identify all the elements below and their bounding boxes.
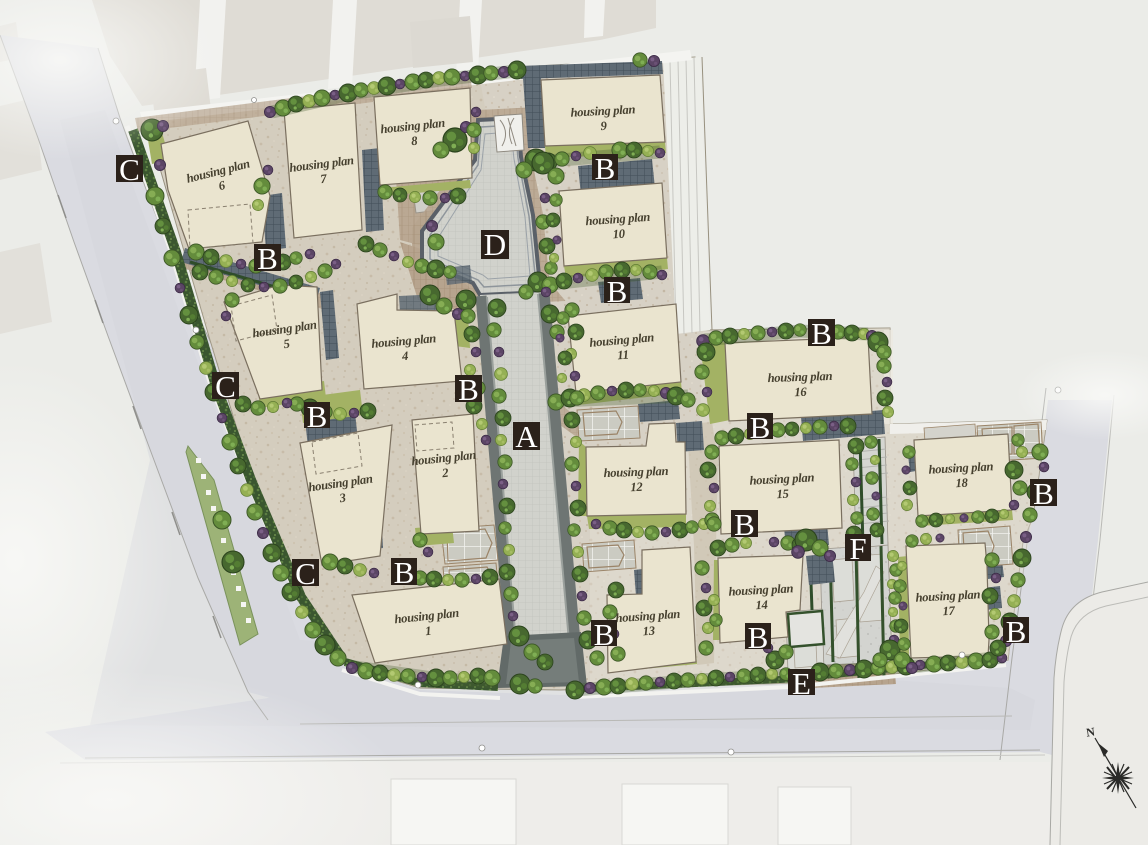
svg-text:16: 16 [794,385,807,399]
svg-text:13: 13 [642,624,655,639]
svg-text:18: 18 [955,476,969,491]
svg-text:B: B [307,399,328,434]
svg-text:B: B [595,151,616,186]
svg-text:B: B [811,316,832,351]
svg-text:F: F [849,531,866,566]
svg-text:C: C [295,556,316,591]
svg-text:14: 14 [755,598,768,613]
svg-text:B: B [458,372,479,407]
svg-text:A: A [515,419,538,454]
svg-text:B: B [734,507,755,542]
svg-text:17: 17 [942,604,956,619]
svg-text:E: E [792,666,811,701]
svg-text:11: 11 [617,347,629,362]
svg-text:B: B [750,410,771,445]
svg-text:B: B [594,617,615,652]
svg-text:C: C [215,369,236,404]
svg-text:4: 4 [400,349,408,364]
svg-text:D: D [484,227,506,262]
svg-text:15: 15 [776,487,789,502]
svg-text:housing plan: housing plan [767,369,832,385]
svg-text:B: B [257,241,278,276]
svg-text:B: B [748,620,769,655]
svg-text:housing plan: housing plan [603,464,668,480]
svg-text:10: 10 [612,227,626,242]
svg-text:C: C [119,152,140,187]
svg-text:B: B [1033,476,1054,511]
svg-text:B: B [607,274,628,309]
svg-text:B: B [394,555,415,590]
svg-text:B: B [1006,614,1027,649]
svg-text:12: 12 [630,480,643,494]
